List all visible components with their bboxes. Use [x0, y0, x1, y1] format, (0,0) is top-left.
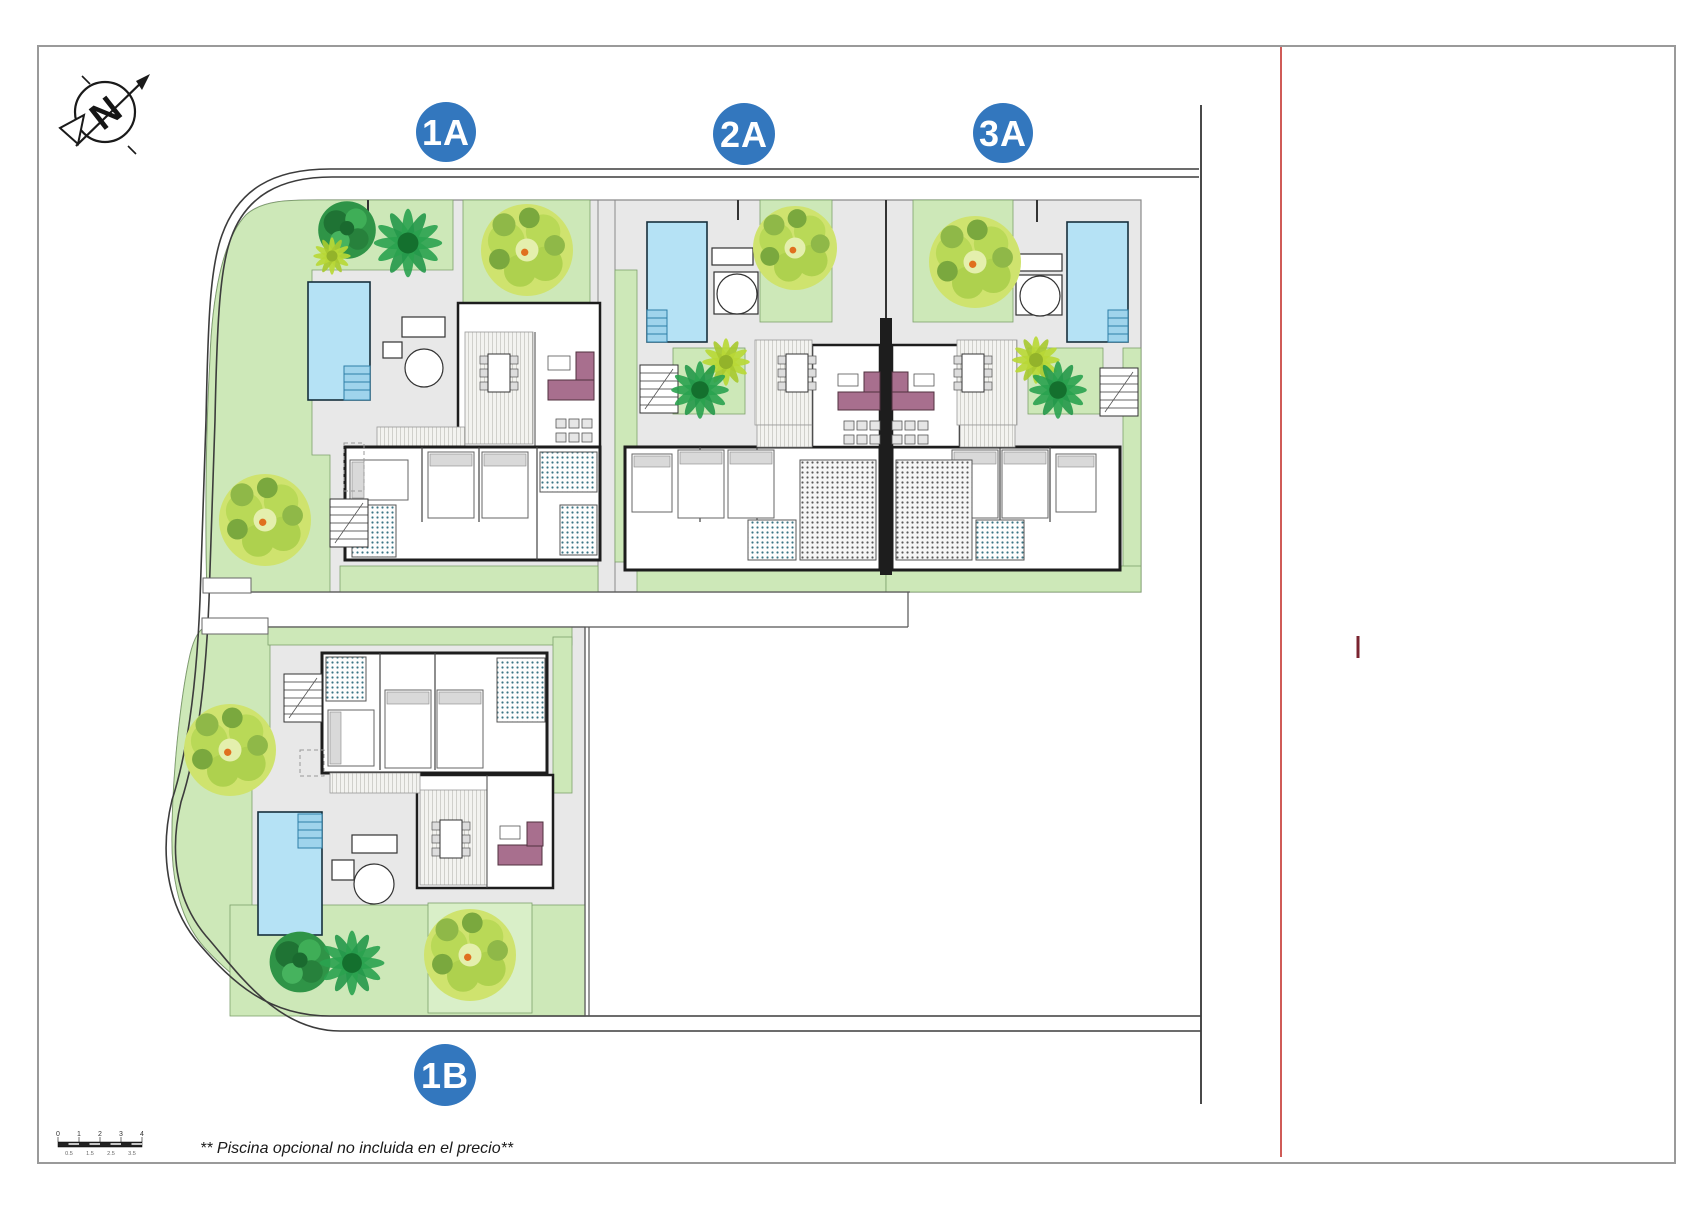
- bed: [678, 450, 724, 518]
- round-table: [717, 274, 757, 314]
- scale-number: 4: [140, 1131, 144, 1138]
- bathroom: [800, 460, 876, 560]
- round-table: [405, 349, 443, 387]
- pool-3a: [1067, 222, 1128, 342]
- bed: [1056, 454, 1096, 512]
- outdoor-stairs: [1100, 368, 1138, 416]
- bathroom: [540, 452, 597, 492]
- bed: [728, 450, 774, 518]
- pool-1b: [258, 812, 322, 935]
- bed: [350, 460, 408, 500]
- bathroom: [560, 505, 597, 555]
- bathroom: [326, 657, 366, 701]
- tree: [219, 474, 311, 566]
- scale-number: 0: [56, 1131, 60, 1138]
- villa-label-text: 1A: [422, 112, 470, 153]
- party-wall: [880, 318, 892, 575]
- villa-label-1b: 1B: [414, 1044, 476, 1106]
- tree: [929, 216, 1021, 308]
- villa-label-text: 3A: [979, 113, 1027, 154]
- outdoor-stairs: [284, 674, 322, 722]
- bathroom: [748, 520, 796, 560]
- scale-subnumber: 2.5: [107, 1151, 115, 1157]
- scale-number: 2: [98, 1131, 102, 1138]
- bed: [1002, 450, 1048, 518]
- pool-2a: [647, 222, 707, 342]
- tree: [184, 704, 276, 796]
- bed: [328, 710, 374, 766]
- scale-subnumber: 0.5: [65, 1151, 73, 1157]
- pool-disclaimer-note: ** Piscina opcional no incluida en el pr…: [200, 1140, 514, 1157]
- bathroom: [976, 520, 1024, 560]
- scale-number: 1: [77, 1131, 81, 1138]
- bed: [482, 452, 528, 518]
- outdoor-dining-table: [778, 354, 816, 392]
- bathroom: [497, 658, 545, 722]
- site-plan-page: 1A 2A 3A 1B N 0 1 2 3 4 0.5 1.5 2.5: [0, 0, 1704, 1205]
- bed: [385, 690, 431, 768]
- villa-label-2a: 2A: [713, 103, 775, 165]
- scale-number: 3: [119, 1131, 123, 1138]
- pool-1a: [308, 282, 370, 400]
- site-plan-drawing: 1A 2A 3A 1B N 0 1 2 3 4 0.5 1.5 2.5: [0, 0, 1704, 1205]
- tree: [481, 204, 573, 296]
- outdoor-dining-table: [480, 354, 518, 392]
- outdoor-dining-table: [954, 354, 992, 392]
- round-table: [1020, 276, 1060, 316]
- bathroom: [896, 460, 972, 560]
- tree: [424, 909, 516, 1001]
- round-table: [354, 864, 394, 904]
- bed: [428, 452, 474, 518]
- villa-label-text: 1B: [421, 1055, 469, 1096]
- page-background: [0, 0, 1704, 1205]
- outdoor-dining-table: [432, 820, 470, 858]
- scale-subnumber: 3.5: [128, 1151, 136, 1157]
- tree: [753, 206, 837, 290]
- bed: [632, 454, 672, 512]
- scale-subnumber: 1.5: [86, 1151, 94, 1157]
- bed: [437, 690, 483, 768]
- villa-label-text: 2A: [720, 114, 768, 155]
- outdoor-stairs: [330, 499, 368, 547]
- villa-label-3a: 3A: [973, 103, 1033, 163]
- villa-label-1a: 1A: [416, 102, 476, 162]
